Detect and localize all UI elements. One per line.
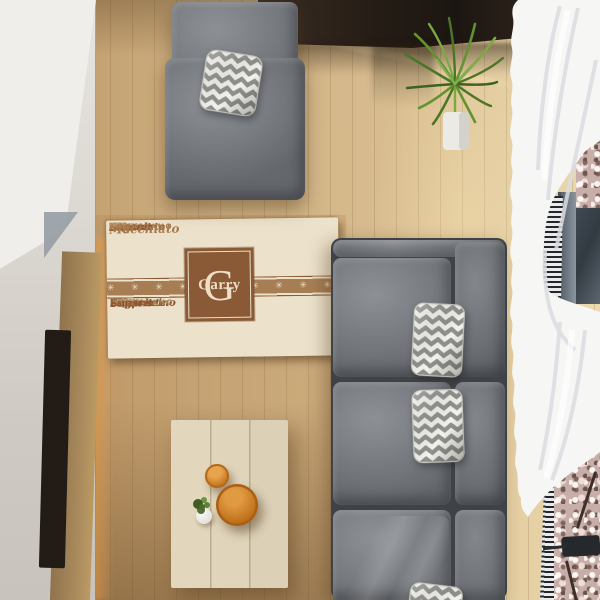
chevron-pillow-sofa-2 [411,388,466,464]
table-plant [199,504,205,510]
radiator-vent [543,196,563,296]
coffee-table [171,420,288,588]
table-plant-pot [196,508,212,524]
window-frame [561,192,576,304]
chevron-pillow-sofa-1 [410,302,466,379]
tray-large [216,484,258,526]
balcony-table [562,535,600,557]
personalized-coffee-rug: SugarIcedDessertMochaSugarBreveDessertco… [106,217,340,358]
rug-word: Americano [109,222,173,232]
living-room-scene: SugarIcedDessertMochaSugarBreveDessertco… [0,0,600,600]
armchair [165,2,305,200]
potted-plant [393,12,515,160]
monogram-name: Garry [198,276,241,294]
tray-small [205,464,229,488]
chevron-pillow-armchair [198,48,265,118]
rug-monogram-square: G Garry [184,248,254,322]
blossom-tree-outside [576,136,600,208]
plant-pot-shade [459,112,469,150]
rug-word: Espresso [110,298,154,309]
